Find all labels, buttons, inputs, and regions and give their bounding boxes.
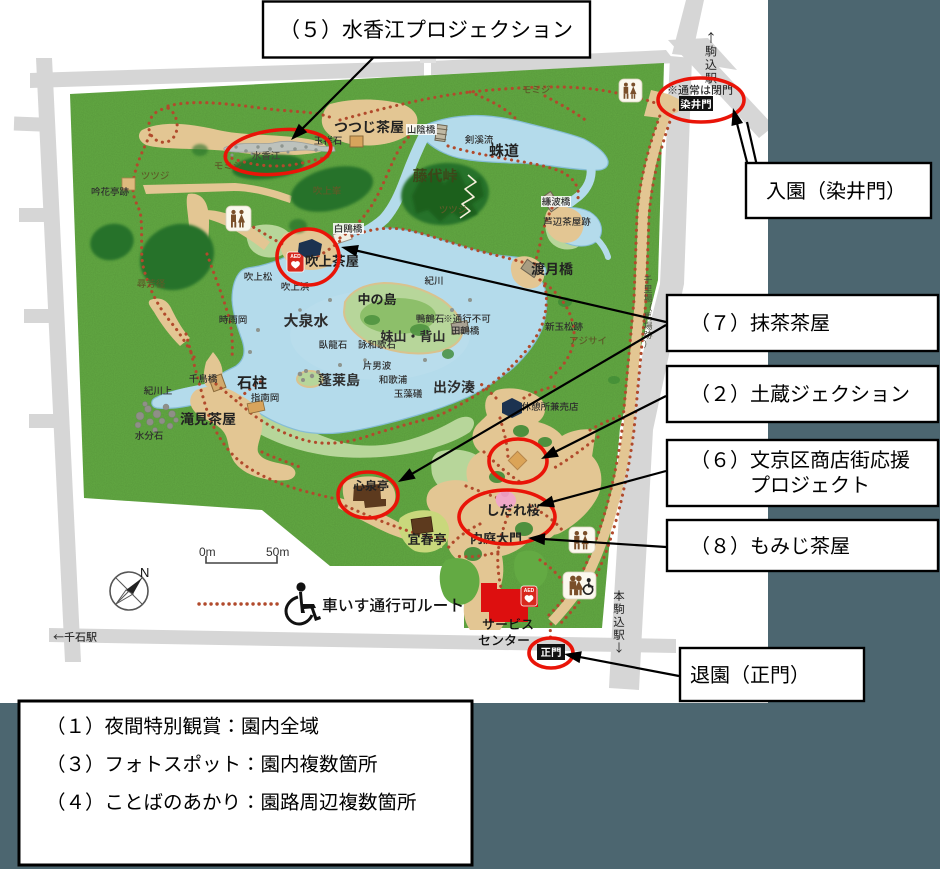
svg-text:0m: 0m: [199, 545, 216, 559]
svg-text:N: N: [140, 565, 149, 580]
svg-text:50m: 50m: [266, 545, 289, 559]
svg-text:AED: AED: [524, 588, 535, 594]
svg-text:AED: AED: [290, 254, 301, 260]
